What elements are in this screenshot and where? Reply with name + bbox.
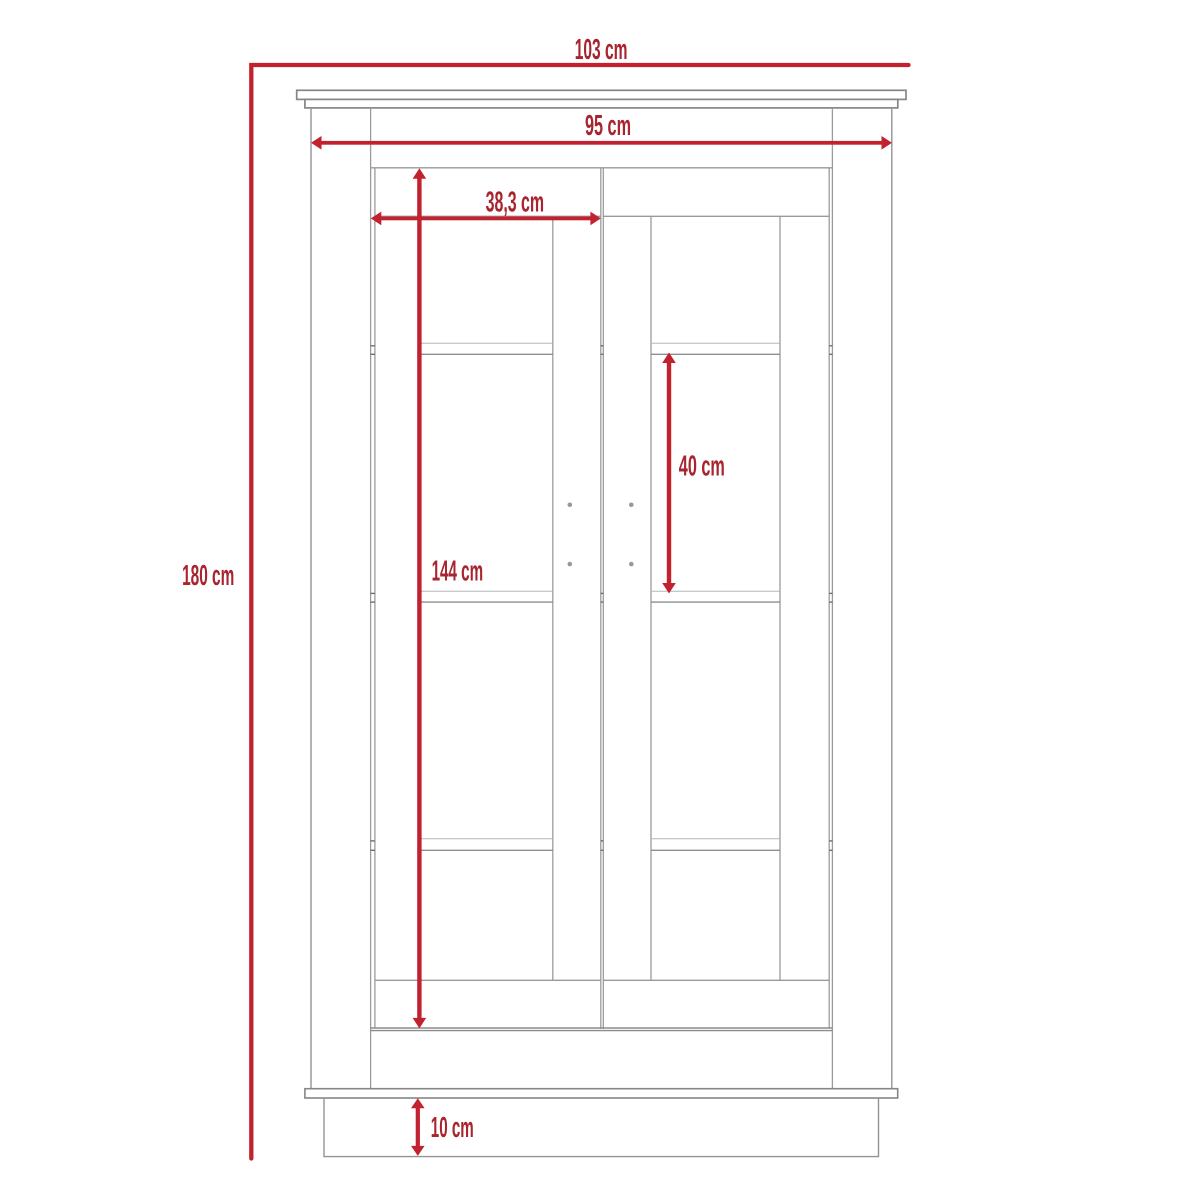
svg-text:144 cm: 144 cm — [432, 555, 484, 587]
svg-text:38,3 cm: 38,3 cm — [486, 186, 544, 218]
svg-text:40 cm: 40 cm — [679, 449, 725, 481]
svg-text:103 cm: 103 cm — [575, 33, 628, 65]
svg-text:95 cm: 95 cm — [585, 109, 631, 141]
svg-text:180 cm: 180 cm — [182, 559, 234, 591]
svg-text:10 cm: 10 cm — [431, 1111, 474, 1143]
